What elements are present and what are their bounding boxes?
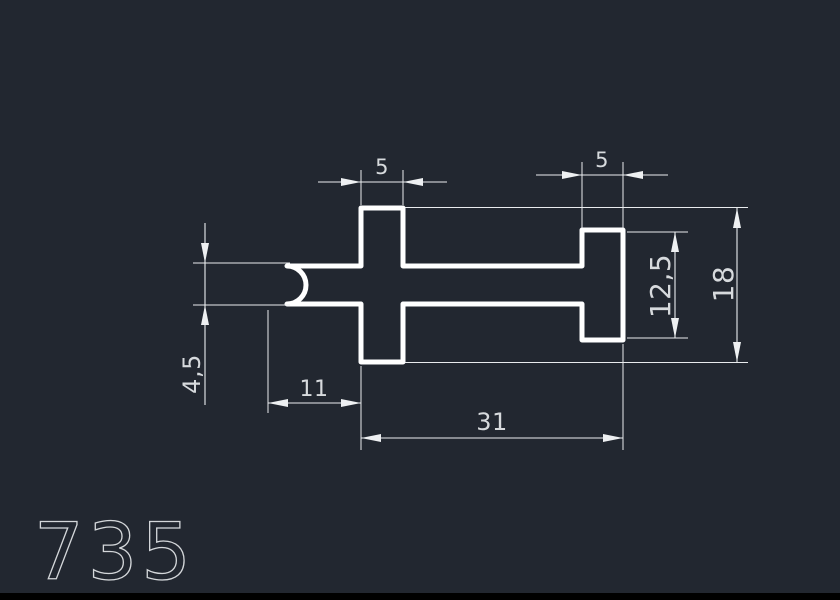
- window-bottom-edge: [0, 593, 840, 600]
- dim-label-overall-height: 18: [707, 266, 740, 303]
- dim-label-flange-width: 5: [595, 148, 609, 172]
- dim-label-flange-height: 12,5: [644, 254, 677, 318]
- part-number-label: 735: [34, 508, 195, 598]
- dim-label-main-length: 31: [476, 408, 508, 436]
- drawing-canvas: 5 5 12,5 18: [0, 0, 840, 600]
- dim-label-cross-width: 5: [375, 155, 389, 179]
- cad-viewport[interactable]: 5 5 12,5 18: [0, 0, 840, 600]
- dim-label-bar-thickness: 4,5: [178, 354, 206, 394]
- dim-label-left-overhang: 11: [300, 377, 329, 402]
